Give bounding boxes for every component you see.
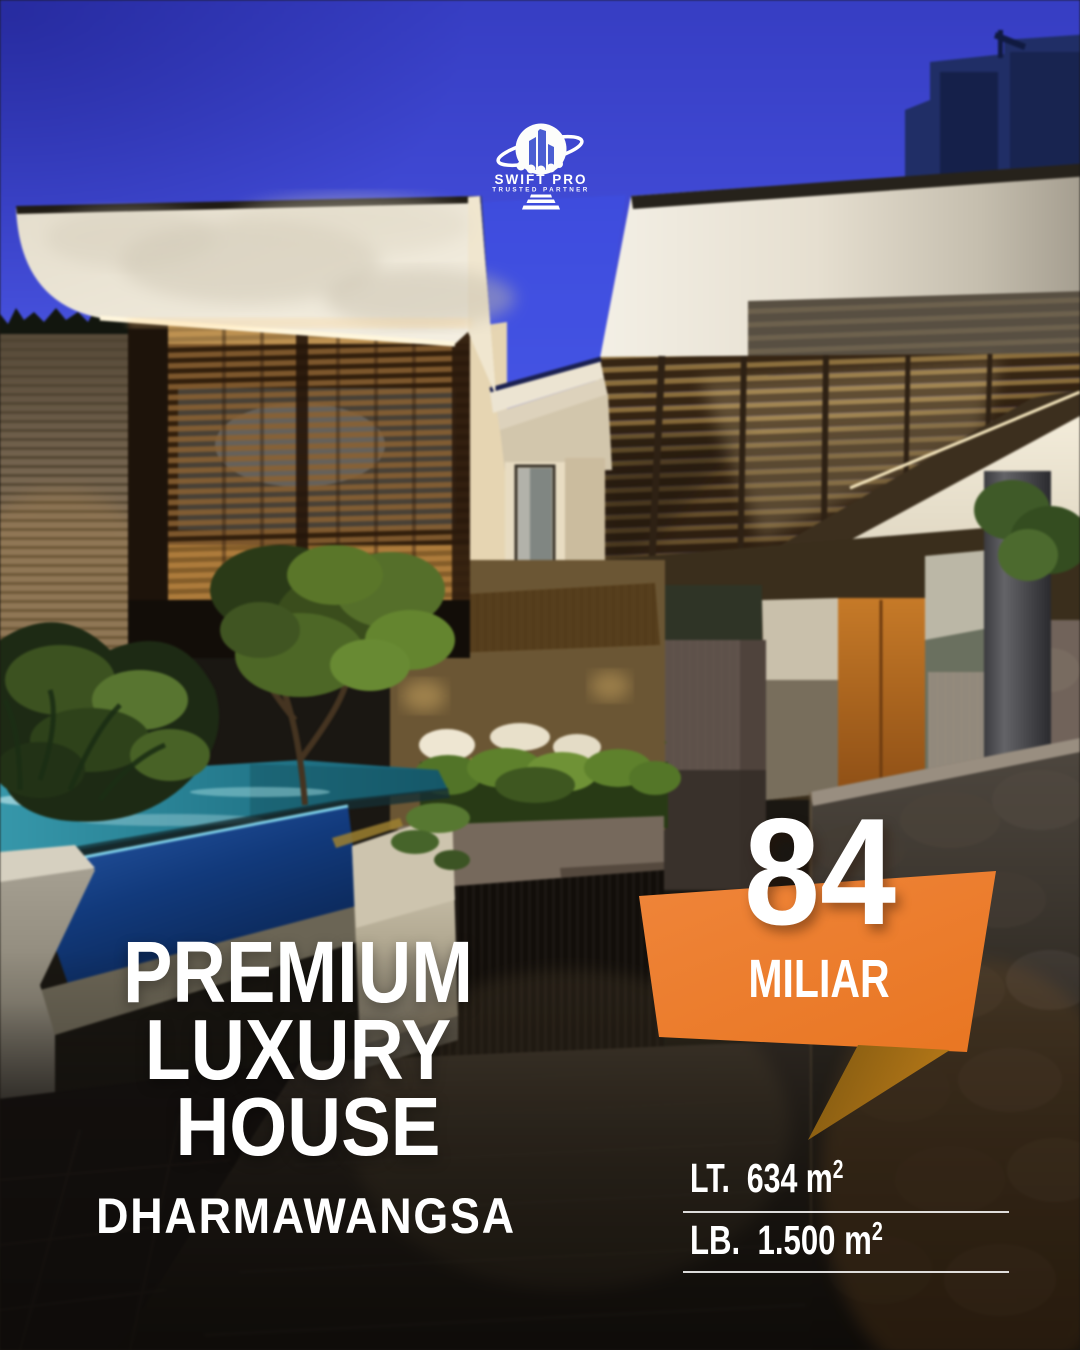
svg-text:TRUSTED PARTNER: TRUSTED PARTNER — [492, 187, 589, 194]
svg-text:SWIFT PRO: SWIFT PRO — [495, 172, 588, 187]
